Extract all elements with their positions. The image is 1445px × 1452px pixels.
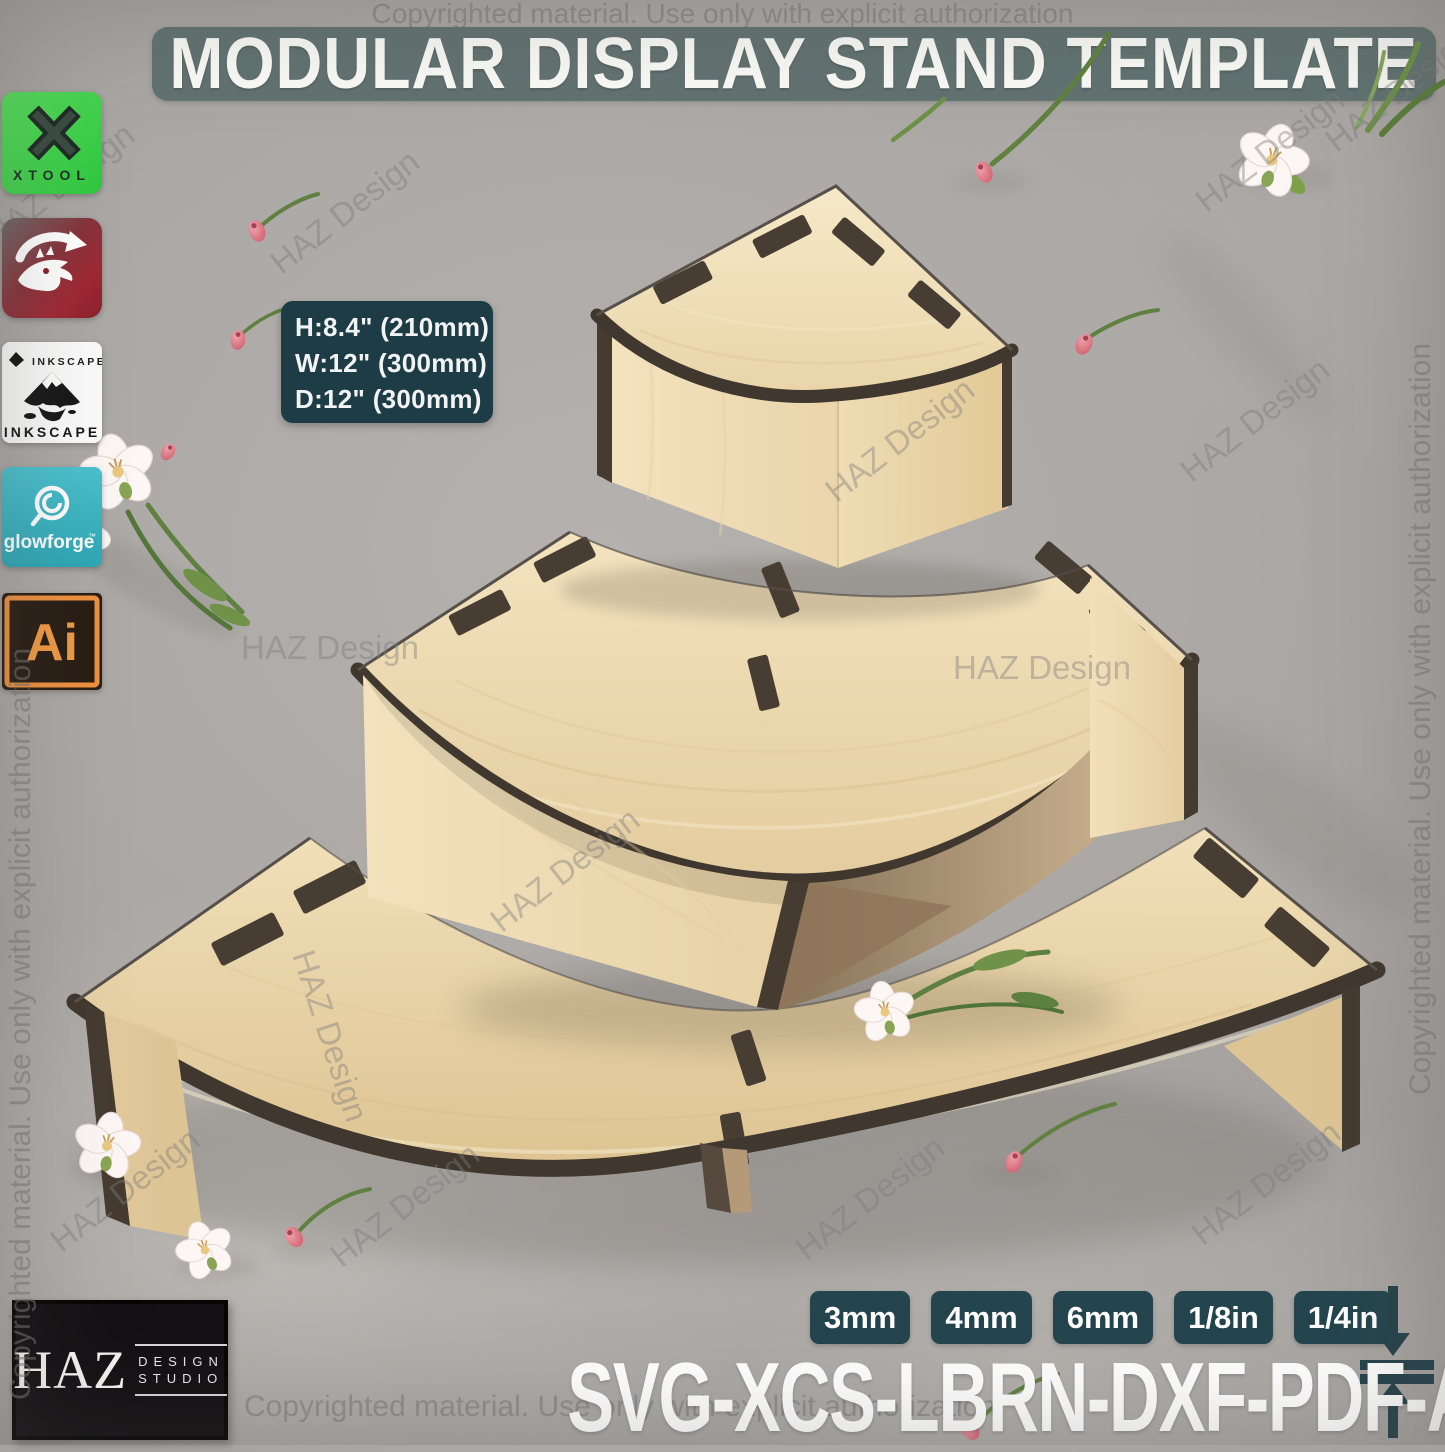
inkscape-label-top: INKSCAPE (32, 356, 102, 368)
watermark-brand: HAZ Design (953, 649, 1131, 687)
xtool-icon: XTOOL (2, 92, 102, 194)
glowforge-label: glowforge (4, 532, 95, 553)
flower-leaves (179, 166, 1309, 1011)
badge-6mm: 6mm (1053, 1291, 1153, 1344)
logo-design: DESIGN (138, 1353, 224, 1370)
badge-1-8in: 1/8in (1174, 1291, 1273, 1344)
watermark-brand: HAZ Design (241, 629, 419, 667)
logo-studio: STUDIO (138, 1370, 224, 1387)
dimension-height: H:8.4" (210mm) (295, 309, 479, 345)
badge-3mm: 3mm (810, 1291, 910, 1344)
dimensions-box: H:8.4" (210mm) W:12" (300mm) D:12" (300m… (281, 301, 493, 423)
haz-logo: HAZ DESIGN STUDIO (12, 1300, 228, 1440)
glowforge-icon: glowforge ™ (2, 467, 102, 567)
glowforge-tm: ™ (88, 532, 96, 541)
inkscape-icon: INKSCAPE INKSCAPE (2, 342, 102, 443)
inkscape-label-bottom: INKSCAPE (4, 424, 100, 440)
badge-4mm: 4mm (931, 1291, 1031, 1344)
logo-subtitle: DESIGN STUDIO (135, 1344, 227, 1396)
watermark-copyright-right: Copyrighted material. Use only with expl… (1404, 335, 1438, 1095)
file-formats: SVG-XCS-LBRN-DXF-PDF-AI-CDR (567, 1352, 1262, 1442)
white-blossoms (35, 111, 1322, 1289)
xtool-label: XTOOL (13, 167, 91, 183)
lightburn-icon (2, 218, 102, 318)
thickness-badges: 3mm 4mm 6mm 1/8in 1/4in (810, 1291, 1392, 1344)
dimension-depth: D:12" (300mm) (295, 381, 479, 417)
dimension-width: W:12" (300mm) (295, 345, 479, 381)
watermark-copyright-left: Copyrighted material. Use only with expl… (4, 630, 38, 1400)
